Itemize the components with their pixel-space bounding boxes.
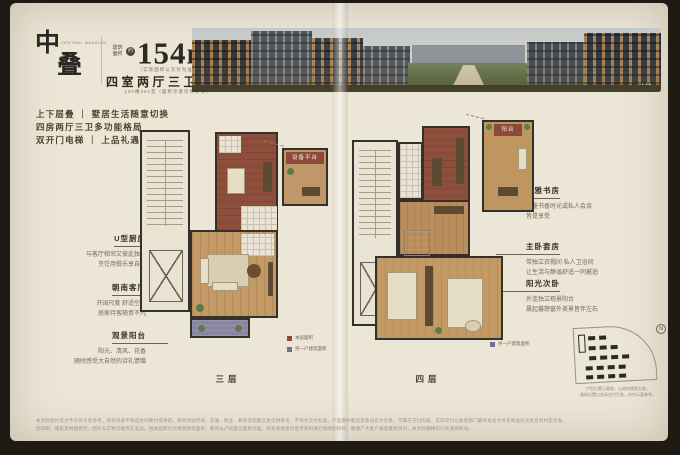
siteplan-tower [578, 335, 586, 353]
selling-point-1: 上下层叠 ｜ 墅居生活随意切换 [36, 108, 169, 121]
annotation-line: 让生活与静谧舒适一同邂逅 [526, 268, 666, 278]
annotation-title: 观景阳台 [112, 331, 168, 344]
bathroom [241, 206, 277, 231]
legend-other-area: 另一户建筑面积 [287, 346, 327, 352]
siteplan-caption-1: 户型位置示意图，以政府规划为准。 [563, 386, 673, 392]
elevator-shaft [149, 250, 183, 302]
siteplan-row [586, 373, 626, 379]
legend-label: 另一户建筑面积 [295, 346, 327, 352]
annotation-view-balcony: 观景阳台 阳光、清风、花香 随时感受大自然的诗礼馈赠 [28, 331, 146, 367]
brochure-photo: 中 叠 CENTRAL MANSION 建筑面积 约 154m2 （实际面积以交… [0, 0, 680, 455]
chair [518, 148, 527, 170]
logo-char-bottom: 叠 [57, 53, 82, 78]
area-label: 建筑面积 [111, 45, 124, 57]
header-divider [101, 37, 102, 84]
annotation-master-suite: 主卧套房 带独立衣帽间 私人卫浴间 让生活与静谧舒适一同邂逅 [526, 242, 666, 278]
annotation-line: 翰墨书香时光或私人会谈 [526, 202, 666, 212]
page-fold [332, 3, 348, 441]
plant [198, 325, 205, 332]
bathroom [219, 136, 241, 153]
disclaimer-line-2: 因印刷、摄影及制图原因，图片与实物可能存在差异。相关面积均为预测建筑面积，最终以… [36, 426, 642, 433]
annotation-line: 带独立衣帽间 私人卫浴间 [526, 258, 666, 268]
kitchen [241, 234, 274, 256]
legend-swatch-blue [490, 342, 495, 347]
area-approx-badge: 约 [126, 47, 135, 56]
annotation-line: 开阔尺度 舒适空间 [28, 299, 146, 309]
plant [486, 124, 492, 130]
equipment-platform-tag: 设备平台 [286, 152, 324, 164]
wardrobe [434, 206, 464, 214]
building-render-photo: ••• [192, 28, 661, 92]
annotation-line: 居家待客随意不凡 [28, 309, 146, 319]
tv-cabinet [268, 262, 273, 296]
siteplan-row [588, 335, 606, 339]
banner-dusk-tint [192, 28, 661, 92]
annotation-line: 外连独立观景阳台 [526, 295, 666, 305]
floor4-label: 四层 [405, 373, 451, 385]
legend-label: 本层面积 [295, 335, 313, 341]
annotation-line: 阳光、清风、花香 [28, 347, 146, 357]
wardrobe [263, 162, 272, 192]
stair-divider [375, 150, 376, 238]
corridor-closet [398, 200, 470, 256]
partition-closet [425, 266, 433, 326]
stair-divider [165, 140, 166, 226]
balcony [190, 318, 250, 338]
equipment-annex: 设备平台 [282, 148, 328, 206]
carousel-dots: ••• [642, 82, 653, 88]
bed [227, 168, 245, 194]
sofa [200, 258, 209, 284]
desk [432, 158, 442, 186]
siteplan-caption-2: 具体位置以实际交付为准，仅作示意参考。 [563, 392, 673, 398]
annotation-line: 皆是享受 [526, 212, 666, 222]
balcony-tag: 阳台 [494, 124, 522, 136]
north-compass-icon: N [656, 324, 666, 334]
annotation-line: 与客厅相邻又彼此独立 [28, 250, 146, 260]
logo-subtext: CENTRAL MANSION [61, 40, 107, 45]
stairwell [140, 130, 190, 312]
annotation-title: 主卧套房 [496, 242, 560, 255]
bedroom-room [215, 132, 278, 232]
bathroom [398, 142, 423, 200]
desk [498, 187, 518, 196]
annotation-sun-bedroom: 阳光次卧 外连独立观景阳台 晨起暮憩窗外美景皆伴左右 [526, 279, 666, 315]
siteplan: N 户型位置示意图，以政府规划为准。 具体位置以实际交付为准，仅作示意参考。 [566, 324, 670, 404]
plant [235, 325, 242, 332]
legend-own-area: 本层面积 [287, 335, 313, 341]
annotation-line: 烹饪用餐乐享自在 [28, 260, 146, 270]
siteplan-row [586, 364, 626, 370]
plant [435, 327, 442, 334]
legend-label: 另一户建筑面积 [498, 341, 530, 347]
desk [302, 187, 320, 196]
sofa [212, 282, 238, 291]
living-dining-room [190, 230, 278, 318]
disclaimer-line-1: 本资料图片及文字仅作示意参考，所有内容不构成合同要约或承诺。项目周边环境、交通、… [36, 418, 642, 425]
plant [287, 168, 294, 175]
bedrooms-zone [375, 256, 503, 340]
siteplan-outline [573, 324, 658, 384]
annotation-study: 静雅书房 翰墨书香时光或私人会谈 皆是享受 [526, 186, 666, 222]
plant [524, 124, 530, 130]
bed [387, 272, 417, 320]
legend-other-area: 另一户建筑面积 [490, 341, 530, 347]
annotation-title: 阳光次卧 [496, 279, 560, 292]
floor3-label: 三层 [205, 373, 251, 385]
bookshelf [456, 138, 464, 184]
siteplan-row [589, 345, 618, 350]
siteplan-row [589, 354, 629, 360]
annotation-line: 随时感受大自然的诗礼馈赠 [28, 357, 146, 367]
annotation-living-room: 朝南客厅 开阔尺度 舒适空间 居家待客随意不凡 [28, 283, 146, 319]
plant [196, 304, 204, 312]
sun-bedroom-annex: 阳台 [482, 120, 534, 212]
inner-stairs [404, 230, 430, 256]
round-rug [465, 320, 481, 332]
annotation-line: 晨起暮憩窗外美景皆伴左右 [526, 305, 666, 315]
legend-swatch-red [287, 336, 292, 341]
dining-table [247, 264, 261, 278]
annotation-kitchen: U型厨房 与客厅相邻又彼此独立 烹饪用餐乐享自在 [28, 234, 146, 270]
legend-swatch-blue [287, 347, 292, 352]
